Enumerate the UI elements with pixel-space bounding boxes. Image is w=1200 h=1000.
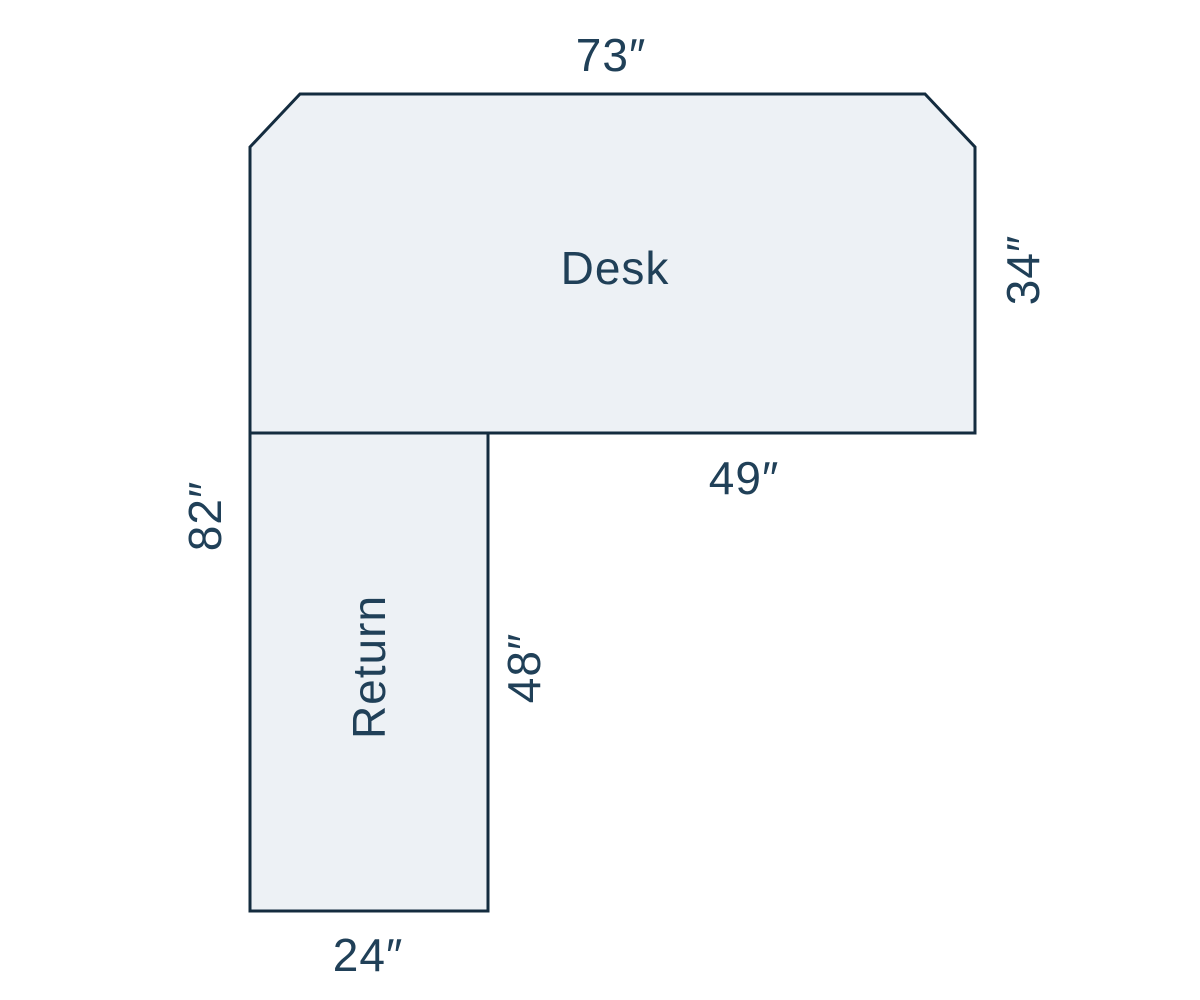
return-label: Return bbox=[346, 595, 392, 739]
return-bottom-width-dimension: 24″ bbox=[333, 932, 403, 978]
return-right-height-dimension: 48″ bbox=[501, 633, 547, 703]
desk-bottom-right-width-dimension: 49″ bbox=[709, 455, 779, 501]
desk-right-depth-dimension: 34″ bbox=[1000, 235, 1046, 305]
desk-dimension-diagram: 73″ Desk 34″ 49″ 82″ Return 48″ 24″ bbox=[0, 0, 1200, 1000]
desk-top-width-dimension: 73″ bbox=[576, 32, 646, 78]
overall-left-height-dimension: 82″ bbox=[182, 481, 228, 551]
desk-label: Desk bbox=[561, 245, 670, 291]
